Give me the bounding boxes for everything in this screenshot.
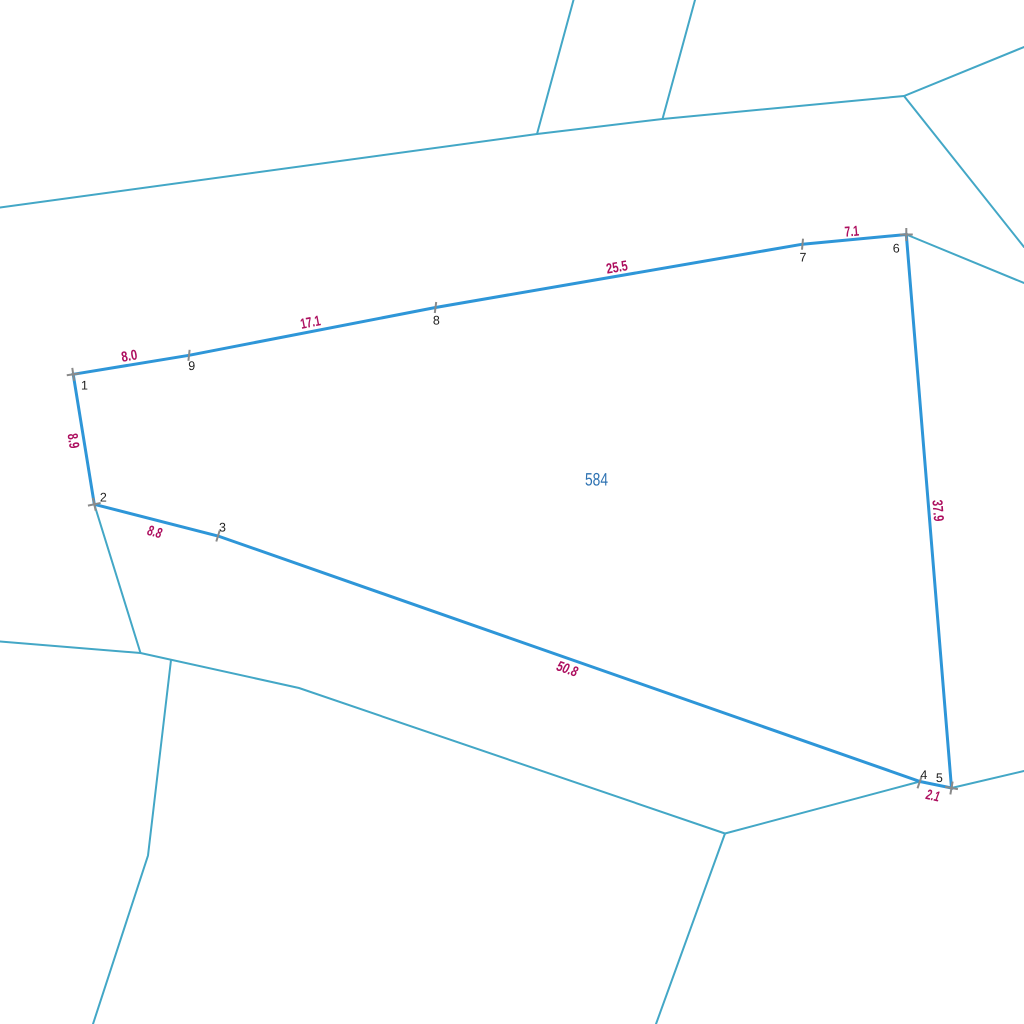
svg-text:8: 8 (433, 314, 440, 328)
svg-text:5: 5 (936, 771, 943, 785)
svg-text:2: 2 (100, 491, 107, 505)
svg-text:3: 3 (219, 520, 226, 534)
svg-text:584: 584 (585, 469, 608, 489)
svg-text:8.0: 8.0 (120, 347, 138, 365)
svg-text:7: 7 (800, 251, 807, 265)
svg-text:9: 9 (188, 359, 195, 373)
svg-text:8.9: 8.9 (64, 432, 82, 449)
svg-text:4: 4 (920, 768, 927, 782)
svg-text:7.1: 7.1 (844, 223, 860, 240)
svg-text:6: 6 (893, 241, 900, 255)
svg-text:37.9: 37.9 (928, 499, 946, 522)
svg-text:1: 1 (81, 378, 88, 392)
